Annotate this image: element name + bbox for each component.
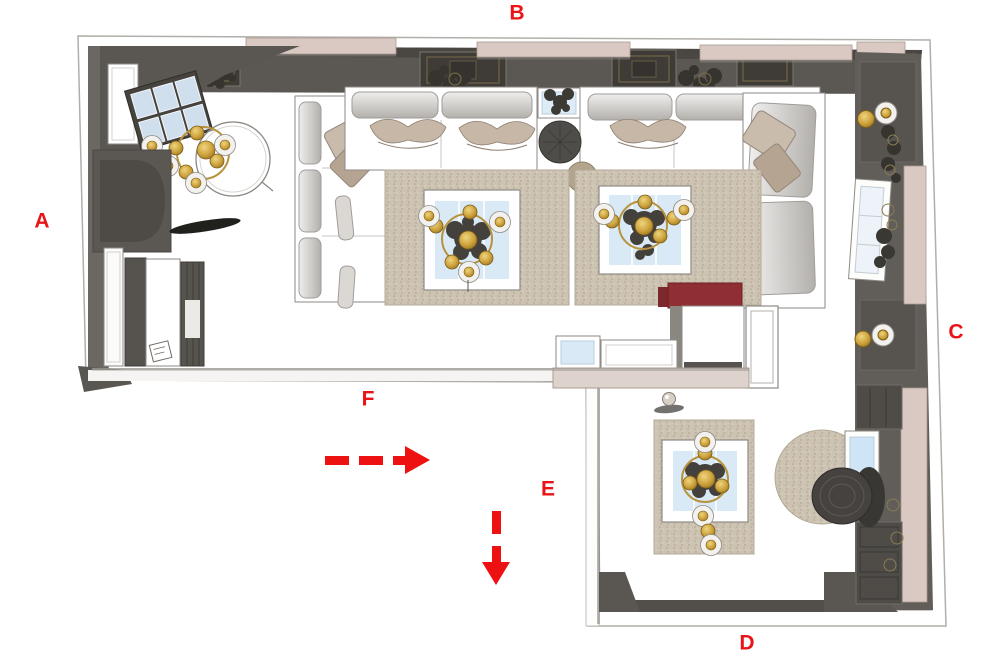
coffee-table-left	[419, 190, 521, 292]
living-room-bottom-wall	[88, 368, 588, 381]
wall-trim-upper	[904, 166, 926, 304]
label-f: F	[362, 389, 375, 410]
arrow-dash	[492, 511, 501, 534]
arrow-stem	[492, 546, 501, 562]
label-a: A	[34, 211, 49, 232]
sofa-end-table	[538, 88, 580, 118]
dashed-arrow-down-icon	[482, 511, 510, 585]
dashed-arrow-right-icon	[325, 446, 430, 474]
fireplace-block	[93, 150, 171, 252]
label-e: E	[541, 479, 555, 500]
wall-trim-lower	[901, 388, 927, 602]
label-c: C	[948, 322, 963, 343]
floor-plan-page: A B C D E F	[0, 0, 1002, 658]
coffee-table-right	[594, 186, 695, 274]
label-d: D	[739, 633, 754, 654]
label-b: B	[509, 3, 524, 24]
side-table-frame	[746, 306, 778, 388]
arrow-head	[405, 446, 430, 474]
media-cabinet	[104, 248, 204, 366]
arrow-dash	[359, 456, 383, 465]
arrow-head	[482, 562, 510, 585]
console-tables	[556, 336, 677, 370]
arrow-stem	[393, 456, 405, 465]
partition-wall	[553, 368, 749, 388]
rattan-chair	[812, 467, 885, 527]
arrow-dash	[325, 456, 349, 465]
